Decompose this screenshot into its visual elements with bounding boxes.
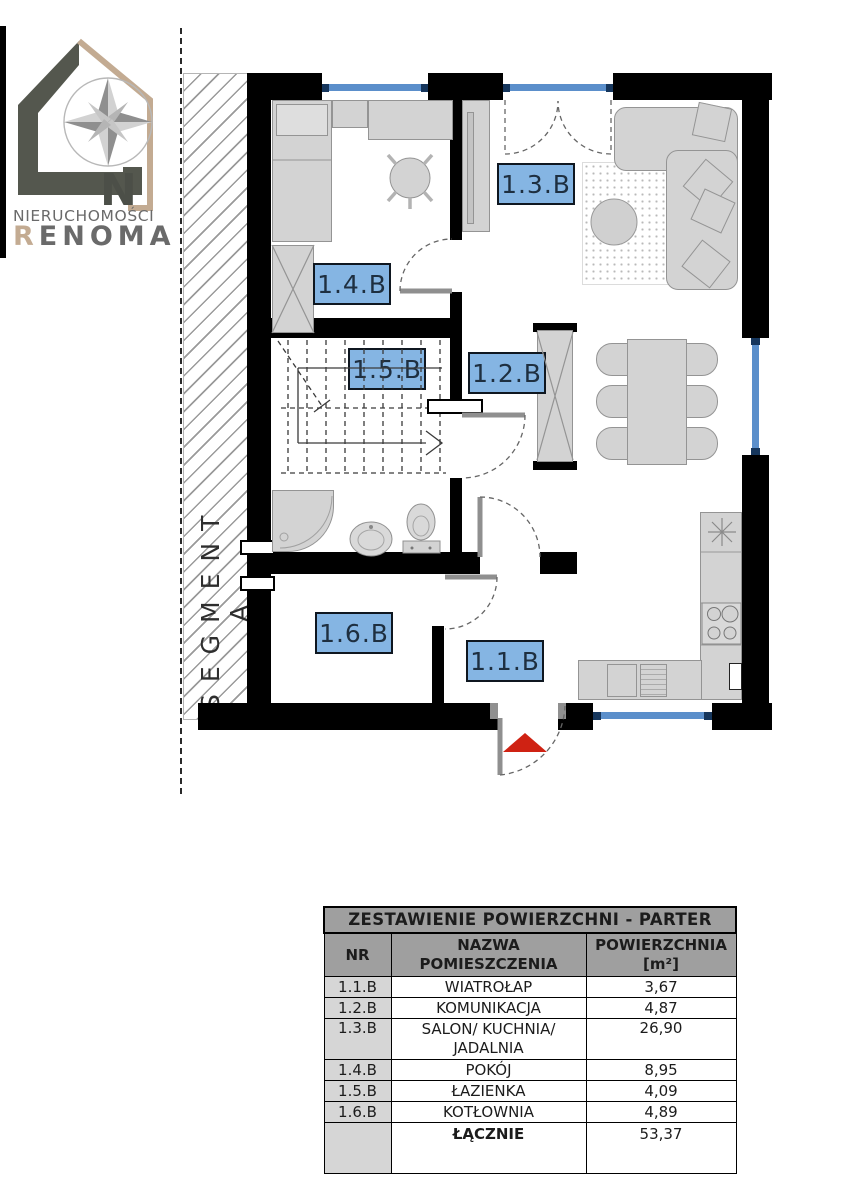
kitchen-sink-star-icon: [708, 518, 736, 546]
cell-area: 3,67: [586, 977, 736, 998]
wardrobe-x-lines: [272, 245, 573, 460]
plan-linework-svg: [0, 0, 848, 800]
door-jamb: [490, 703, 498, 719]
cell-name: KOMUNIKACJA: [391, 998, 586, 1019]
cell-area: 4,87: [586, 998, 736, 1019]
stair-threshold: [428, 400, 482, 413]
total-label: ŁĄCZNIE: [391, 1123, 586, 1174]
desk-chair: [388, 155, 432, 209]
table-row: 1.3.B SALON/ KUCHNIA/ JADALNIA 26,90: [324, 1019, 736, 1060]
table-row: 1.1.B WIATROŁAP 3,67: [324, 977, 736, 998]
washbasin: [350, 522, 392, 556]
cell-name: ŁAZIENKA: [391, 1081, 586, 1102]
toilet: [403, 504, 440, 553]
cell-name: POKÓJ: [391, 1060, 586, 1081]
cell-name: SALON/ KUCHNIA/ JADALNIA: [391, 1019, 586, 1060]
table-title: ZESTAWIENIE POWIERZCHNI - PARTER: [324, 907, 736, 933]
column-header-nr: NR: [324, 933, 391, 977]
cell-nr: 1.5.B: [324, 1081, 391, 1102]
column-header-area: POWIERZCHNIA [m²]: [586, 933, 736, 977]
column-header-name: NAZWA POMIESZCZENIA: [391, 933, 586, 977]
area-summary-table: ZESTAWIENIE POWIERZCHNI - PARTER NR NAZW…: [323, 906, 737, 1174]
cell-area: 26,90: [586, 1019, 736, 1060]
table-row: 1.5.B ŁAZIENKA 4,09: [324, 1081, 736, 1102]
table-row: 1.2.B KOMUNIKACJA 4,87: [324, 998, 736, 1019]
door-jamb: [558, 703, 566, 719]
total-value: 53,37: [586, 1123, 736, 1174]
page: N NIERUCHOMOŚCI RENOMA SEGMENT A: [0, 0, 848, 1200]
stairs: [278, 340, 446, 473]
stove: [702, 603, 741, 644]
coffee-table: [591, 199, 637, 245]
cell-area: 4,09: [586, 1081, 736, 1102]
cell-nr: 1.2.B: [324, 998, 391, 1019]
cell-name: KOTŁOWNIA: [391, 1102, 586, 1123]
cell-area: 8,95: [586, 1060, 736, 1081]
cell-area: 4,89: [586, 1102, 736, 1123]
cell-nr-empty: [324, 1123, 391, 1174]
table-total-row: ŁĄCZNIE 53,37: [324, 1123, 736, 1174]
shower-detail: [280, 496, 332, 548]
cell-name: WIATROŁAP: [391, 977, 586, 998]
cell-nr: 1.1.B: [324, 977, 391, 998]
cell-nr: 1.4.B: [324, 1060, 391, 1081]
cell-nr: 1.3.B: [324, 1019, 391, 1060]
table-row: 1.4.B POKÓJ 8,95: [324, 1060, 736, 1081]
table-row: 1.6.B KOTŁOWNIA 4,89: [324, 1102, 736, 1123]
cell-nr: 1.6.B: [324, 1102, 391, 1123]
